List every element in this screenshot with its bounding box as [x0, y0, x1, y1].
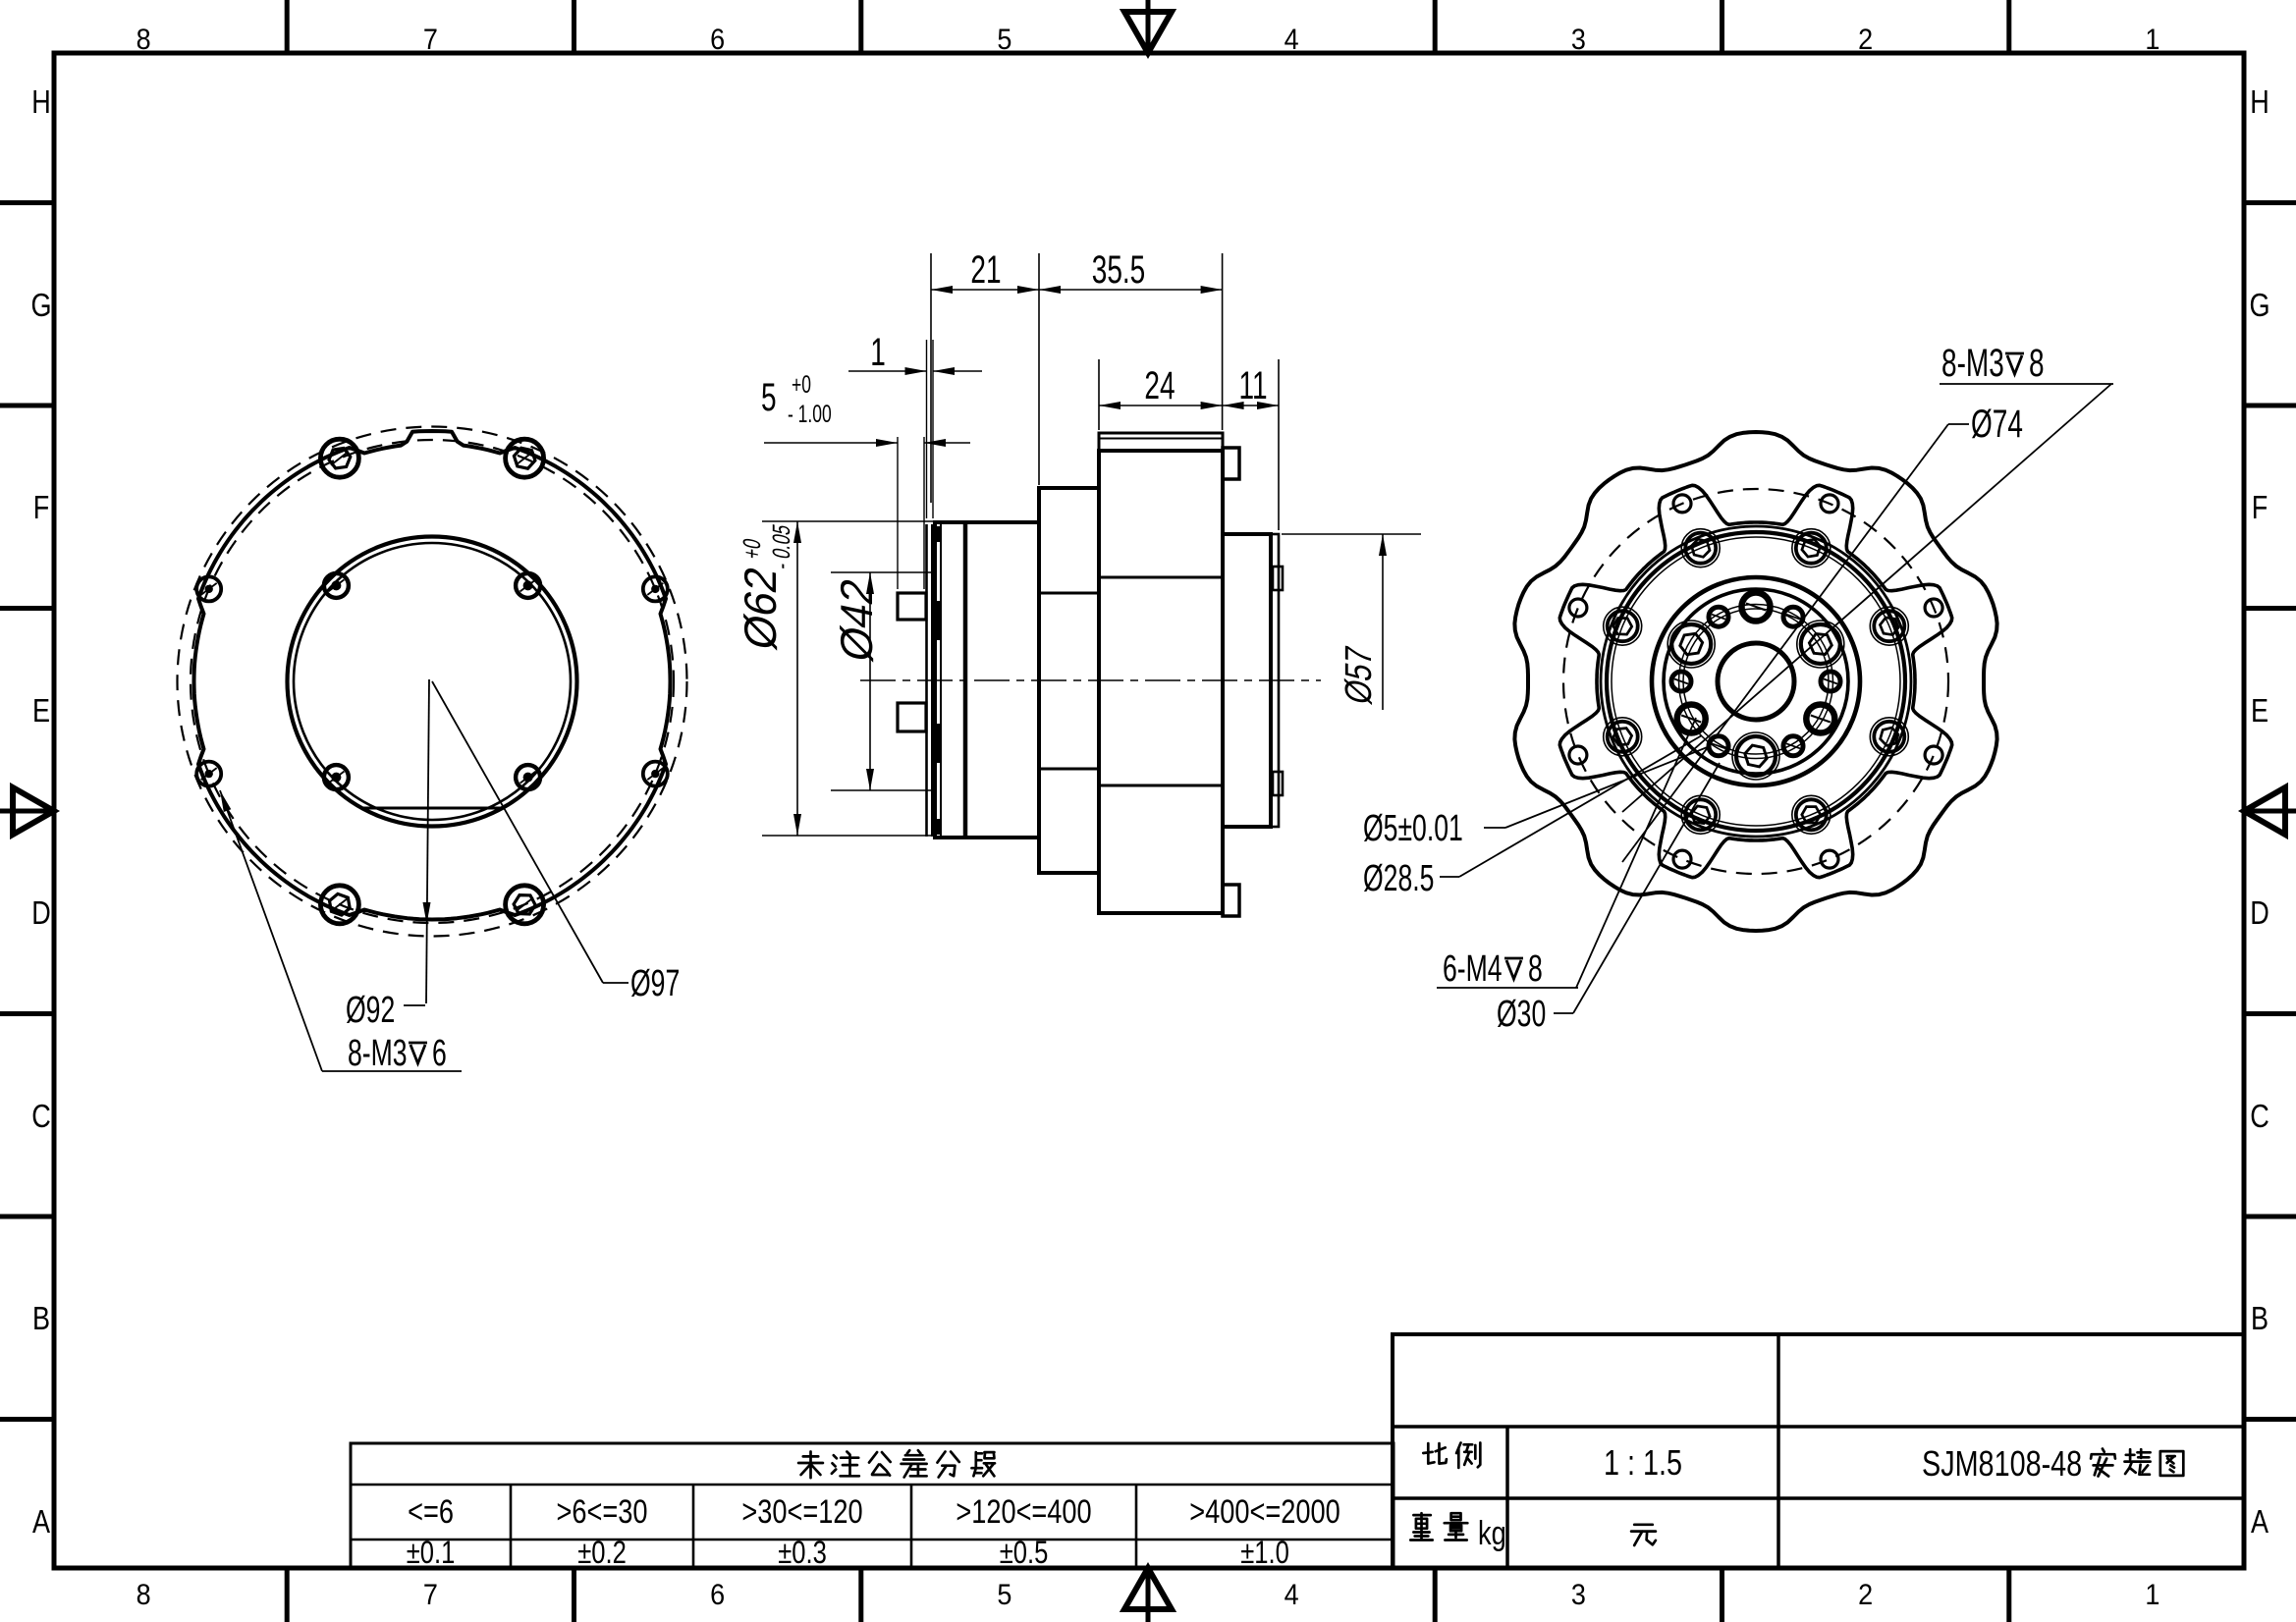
svg-text:±1.0: ±1.0 — [1240, 1536, 1289, 1570]
svg-text:±0.5: ±0.5 — [1000, 1536, 1049, 1570]
svg-text:C: C — [31, 1099, 51, 1134]
svg-text:8: 8 — [1528, 946, 1543, 989]
svg-text:6-M4: 6-M4 — [1443, 946, 1503, 989]
svg-text:>6<=30: >6<=30 — [557, 1492, 648, 1531]
svg-text:8: 8 — [137, 1579, 151, 1612]
svg-text:F: F — [33, 491, 50, 526]
svg-text:±0.3: ±0.3 — [778, 1536, 827, 1570]
svg-text:6: 6 — [710, 1579, 725, 1612]
svg-text:SJM8108-48: SJM8108-48 — [1922, 1443, 2082, 1484]
svg-text:Ø5±0.01: Ø5±0.01 — [1363, 806, 1463, 848]
svg-text:3: 3 — [1571, 24, 1586, 57]
svg-text:8: 8 — [2029, 342, 2045, 385]
svg-text:3: 3 — [1571, 1579, 1586, 1612]
svg-text:- 1.00: - 1.00 — [788, 400, 832, 428]
svg-text:1: 1 — [870, 331, 886, 374]
svg-text:1: 1 — [2145, 1579, 2159, 1612]
svg-text:Ø74: Ø74 — [1971, 403, 2023, 446]
svg-text:7: 7 — [423, 24, 438, 57]
svg-text:D: D — [31, 896, 51, 932]
svg-text:2: 2 — [1858, 1579, 1873, 1612]
svg-text:5: 5 — [997, 1579, 1011, 1612]
svg-text:H: H — [31, 85, 51, 121]
svg-text:E: E — [2251, 693, 2269, 729]
svg-text:G: G — [2249, 288, 2269, 323]
svg-text:B: B — [32, 1302, 50, 1337]
svg-text:1: 1 — [2145, 24, 2159, 57]
svg-text:Ø30: Ø30 — [1497, 992, 1546, 1034]
svg-text:Ø92: Ø92 — [346, 988, 395, 1030]
svg-text:4: 4 — [1285, 24, 1299, 57]
svg-text:±0.2: ±0.2 — [577, 1536, 627, 1570]
svg-text:<=6: <=6 — [408, 1492, 454, 1531]
svg-text:±0.1: ±0.1 — [407, 1536, 456, 1570]
svg-text:4: 4 — [1285, 1579, 1299, 1612]
svg-text:8: 8 — [137, 24, 151, 57]
svg-text:Ø62: Ø62 — [735, 563, 786, 655]
svg-text:24: 24 — [1144, 364, 1175, 407]
svg-text:- 0.05: - 0.05 — [767, 521, 795, 571]
svg-text:>30<=120: >30<=120 — [741, 1492, 862, 1531]
svg-text:Ø28.5: Ø28.5 — [1363, 856, 1434, 898]
svg-text:35.5: 35.5 — [1092, 248, 1145, 292]
svg-text:8-M3: 8-M3 — [348, 1031, 408, 1073]
svg-text:8-M3: 8-M3 — [1941, 342, 2004, 385]
svg-text:7: 7 — [423, 1579, 438, 1612]
svg-text:6: 6 — [432, 1031, 447, 1073]
svg-text:A: A — [2251, 1504, 2269, 1540]
svg-text:C: C — [2250, 1099, 2269, 1134]
svg-text:>400<=2000: >400<=2000 — [1189, 1492, 1339, 1531]
svg-text:>120<=400: >120<=400 — [956, 1492, 1091, 1531]
svg-text:+0: +0 — [792, 370, 811, 399]
svg-text:D: D — [2250, 896, 2269, 932]
svg-text:H: H — [2250, 85, 2269, 121]
svg-text:2: 2 — [1858, 24, 1873, 57]
svg-text:E: E — [32, 693, 50, 729]
svg-text:A: A — [32, 1504, 51, 1540]
svg-text:5: 5 — [761, 376, 777, 419]
svg-text:Ø42: Ø42 — [831, 574, 882, 667]
svg-text:+0: +0 — [738, 536, 766, 562]
svg-text:Ø57: Ø57 — [1338, 642, 1379, 707]
svg-text:F: F — [2252, 491, 2269, 526]
svg-text:21: 21 — [970, 248, 1001, 292]
svg-text:kg: kg — [1478, 1514, 1506, 1552]
svg-text:1 : 1.5: 1 : 1.5 — [1604, 1442, 1682, 1483]
svg-text:G: G — [30, 288, 51, 323]
svg-text:6: 6 — [710, 24, 725, 57]
svg-text:Ø97: Ø97 — [630, 961, 680, 1003]
svg-text:5: 5 — [997, 24, 1011, 57]
svg-text:B: B — [2251, 1302, 2269, 1337]
svg-text:11: 11 — [1238, 364, 1267, 407]
